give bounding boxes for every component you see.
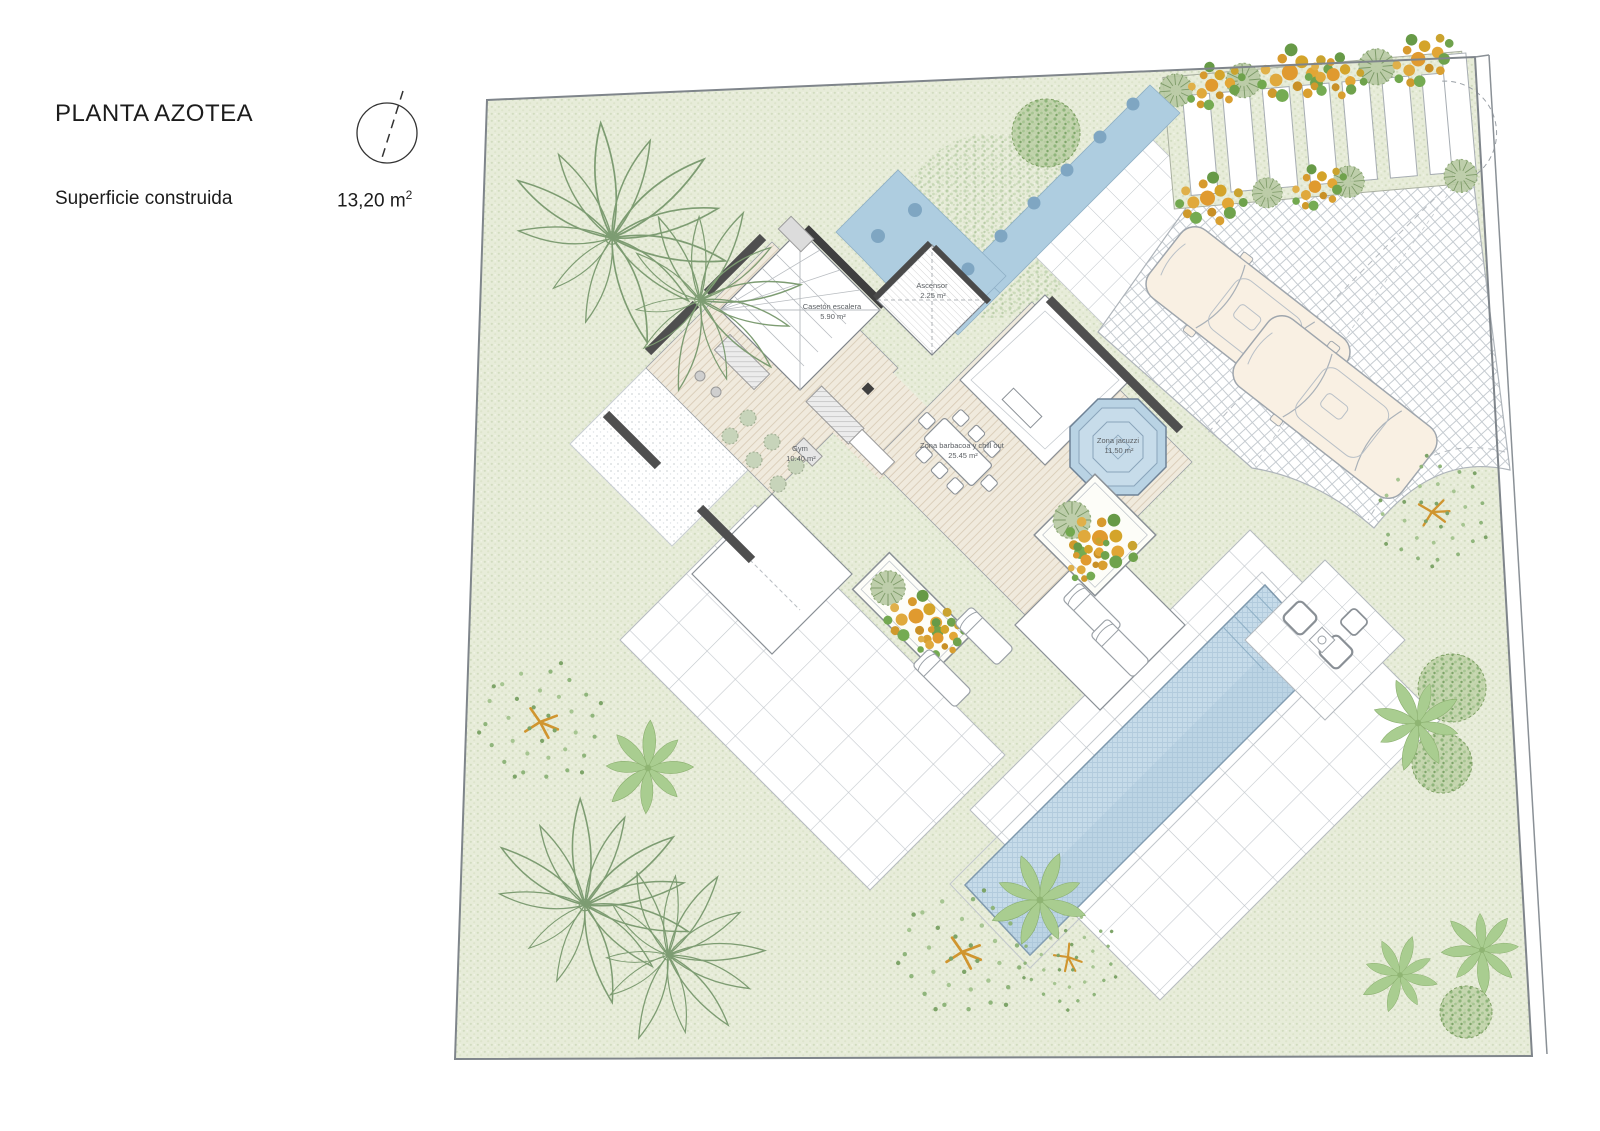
- floor-plan-page: PLANTA AZOTEA Superficie construida 13,2…: [0, 0, 1600, 1131]
- room-label-elevator: Ascensor 2.25 m²: [916, 281, 949, 300]
- site-plan: Casetón escalera 5.90 m² Ascensor 2.25 m…: [0, 0, 1600, 1131]
